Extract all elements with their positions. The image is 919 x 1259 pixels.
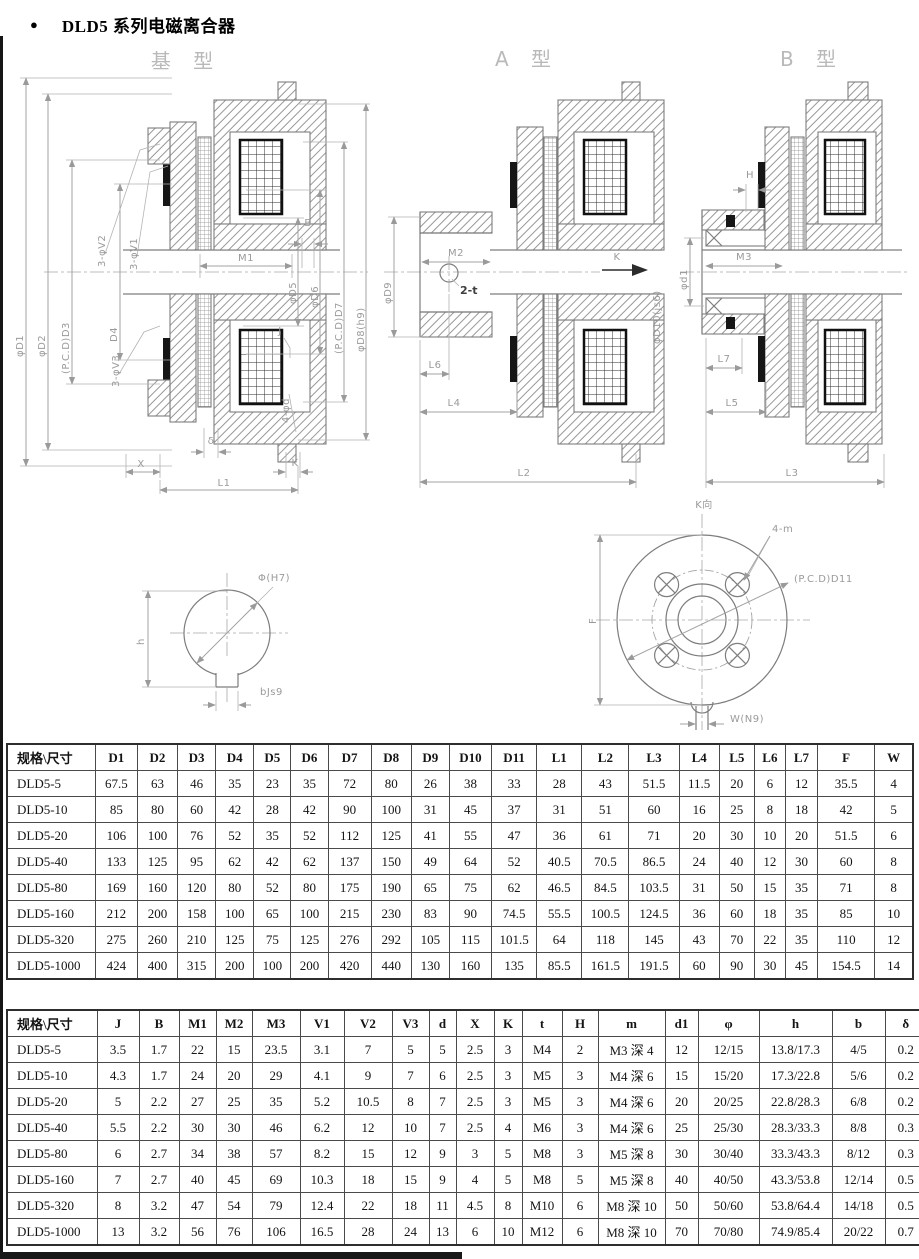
drawing-title-base: 基 型: [151, 49, 221, 73]
table-cell: 43.3/53.8: [759, 1167, 832, 1193]
table-cell: 12: [875, 927, 913, 953]
table-cell: 25: [665, 1115, 698, 1141]
row-label: DLD5-80: [7, 1141, 97, 1167]
table-cell: 0.5: [885, 1193, 919, 1219]
table-cell: 125: [371, 823, 411, 849]
table-cell: 35: [254, 823, 291, 849]
table-cell: 65: [254, 901, 291, 927]
table-cell: 175: [328, 875, 371, 901]
table-cell: 38: [216, 1141, 252, 1167]
table-cell: 28: [344, 1219, 392, 1246]
table-cell: 42: [291, 797, 328, 823]
table-cell: 100: [371, 797, 411, 823]
table-cell: 80: [137, 797, 177, 823]
column-header: M3: [252, 1010, 300, 1037]
table-cell: 0.2: [885, 1063, 919, 1089]
dim-label: L2: [518, 468, 531, 479]
table-row: DLD5-405.52.23030466.2121072.54M63M4 深 6…: [7, 1115, 919, 1141]
table-cell: 7: [429, 1089, 456, 1115]
table-cell: 50: [719, 875, 754, 901]
row-label: DLD5-20: [7, 1089, 97, 1115]
table-cell: 7: [344, 1037, 392, 1063]
table-row: DLD5-1000133.2567610616.5282413610M126M8…: [7, 1219, 919, 1246]
table-cell: 15: [665, 1063, 698, 1089]
table-cell: 120: [178, 875, 216, 901]
table-cell: M4 深 6: [598, 1089, 665, 1115]
row-label: DLD5-80: [7, 875, 95, 901]
table-cell: 47: [492, 823, 537, 849]
table-cell: 169: [95, 875, 137, 901]
table-cell: 6: [429, 1063, 456, 1089]
row-label: DLD5-320: [7, 1193, 97, 1219]
table-cell: 2.7: [139, 1141, 179, 1167]
table-cell: 12: [754, 849, 785, 875]
dim-label: (P.C.D)D3: [61, 322, 72, 374]
table-cell: 52: [254, 875, 291, 901]
table-cell: 3: [456, 1141, 494, 1167]
table-cell: 125: [216, 927, 254, 953]
dim-label: L4: [448, 398, 461, 409]
table-cell: 200: [216, 953, 254, 980]
table-cell: 8: [97, 1193, 139, 1219]
table-cell: 6: [754, 771, 785, 797]
table-cell: 45: [449, 797, 491, 823]
table-cell: 25: [216, 1089, 252, 1115]
table-cell: 3.2: [139, 1193, 179, 1219]
table-cell: 12/15: [698, 1037, 759, 1063]
table-cell: 51: [582, 797, 629, 823]
column-header: V3: [392, 1010, 429, 1037]
dim-label: φd1: [679, 269, 690, 290]
table-row: DLD5-8016916012080528017519065756246.584…: [7, 875, 913, 901]
table-cell: 3: [562, 1063, 598, 1089]
dim-label: 3-φV2: [97, 235, 108, 267]
table-cell: 12.4: [300, 1193, 344, 1219]
table-cell: 28: [254, 797, 291, 823]
table-cell: M8: [522, 1141, 562, 1167]
column-header: L7: [785, 744, 817, 771]
table-cell: 30: [179, 1115, 216, 1141]
table-cell: 440: [371, 953, 411, 980]
dim-label: L3: [786, 468, 799, 479]
table-cell: 52: [492, 849, 537, 875]
table-cell: 30: [719, 823, 754, 849]
table-cell: 30: [785, 849, 817, 875]
table-cell: 70.5: [582, 849, 629, 875]
column-header: F: [818, 744, 875, 771]
table-row: DLD5-32027526021012575125276292105115101…: [7, 927, 913, 953]
table-cell: 41: [411, 823, 449, 849]
table-cell: M5 深 8: [598, 1141, 665, 1167]
table-cell: 10: [754, 823, 785, 849]
dim-label: φD6: [310, 286, 321, 308]
column-header: D2: [137, 744, 177, 771]
table-cell: 100: [291, 901, 328, 927]
table-cell: 4.1: [300, 1063, 344, 1089]
table-cell: 3.2: [139, 1219, 179, 1246]
table-cell: 35: [291, 771, 328, 797]
table-cell: 63: [137, 771, 177, 797]
table-cell: 4.3: [97, 1063, 139, 1089]
dim-label: h: [136, 638, 147, 645]
table-cell: 60: [178, 797, 216, 823]
table-cell: 20/25: [698, 1089, 759, 1115]
table-cell: 40: [719, 849, 754, 875]
table-cell: 46.5: [537, 875, 582, 901]
dim-label: φD1: [15, 335, 26, 357]
table-cell: 20: [719, 771, 754, 797]
table-cell: 24: [679, 849, 719, 875]
table-cell: 18: [785, 797, 817, 823]
catalog-page: ● DLD5 系列电磁离合器 基 型: [0, 0, 919, 1259]
column-header: D6: [291, 744, 328, 771]
table-row: DLD5-401331259562426213715049645240.570.…: [7, 849, 913, 875]
table-cell: 14: [875, 953, 913, 980]
table-cell: 40.5: [537, 849, 582, 875]
table-cell: 62: [291, 849, 328, 875]
table-cell: 24: [179, 1063, 216, 1089]
row-label: DLD5-5: [7, 1037, 97, 1063]
drawing-bore-detail: Φ(H7) h bJs9: [120, 545, 360, 735]
table-cell: 33.3/43.3: [759, 1141, 832, 1167]
table-cell: 62: [492, 875, 537, 901]
table-cell: 50/60: [698, 1193, 759, 1219]
table-cell: 23.5: [252, 1037, 300, 1063]
table-cell: 130: [411, 953, 449, 980]
drawing-title-a: A 型: [495, 47, 559, 71]
table-row: DLD5-567.563463523357280263833284351.511…: [7, 771, 913, 797]
row-label: DLD5-1000: [7, 953, 95, 980]
table-cell: 57: [252, 1141, 300, 1167]
table-cell: 64: [449, 849, 491, 875]
dim-label: M3: [736, 252, 752, 263]
table-cell: M4 深 6: [598, 1115, 665, 1141]
table-cell: 31: [679, 875, 719, 901]
column-header: B: [139, 1010, 179, 1037]
dim-label: δ: [208, 436, 215, 447]
table-cell: 35.5: [818, 771, 875, 797]
table-cell: 6: [456, 1219, 494, 1246]
table-cell: 0.5: [885, 1167, 919, 1193]
table-cell: 161.5: [582, 953, 629, 980]
table-cell: 60: [719, 901, 754, 927]
table-cell: 90: [449, 901, 491, 927]
table-cell: 35: [785, 927, 817, 953]
table-cell: 145: [629, 927, 679, 953]
table-cell: 47: [179, 1193, 216, 1219]
table-cell: 15: [392, 1167, 429, 1193]
table-cell: 56: [179, 1219, 216, 1246]
column-header: L6: [754, 744, 785, 771]
dim-label: φD10(js6): [652, 290, 663, 344]
column-header: V1: [300, 1010, 344, 1037]
row-label: DLD5-1000: [7, 1219, 97, 1246]
table-cell: 46: [178, 771, 216, 797]
dim-label: Φ(H7): [258, 573, 290, 584]
column-header: h: [759, 1010, 832, 1037]
table-cell: 22.8/28.3: [759, 1089, 832, 1115]
table-cell: 52: [216, 823, 254, 849]
table-cell: 25: [719, 797, 754, 823]
table-cell: 6/8: [832, 1089, 885, 1115]
table-cell: 76: [216, 1219, 252, 1246]
dim-label: W(N9): [730, 714, 764, 725]
table-cell: 62: [216, 849, 254, 875]
table-row: DLD5-16021220015810065100215230839074.55…: [7, 901, 913, 927]
column-header: L3: [629, 744, 679, 771]
dim-label: K: [291, 458, 298, 469]
dim-label: L1: [218, 478, 231, 489]
table-cell: 71: [818, 875, 875, 901]
dim-label: F: [588, 618, 599, 624]
table-cell: 13: [429, 1219, 456, 1246]
table-cell: 3.1: [300, 1037, 344, 1063]
table-cell: 424: [95, 953, 137, 980]
table-cell: 13.8/17.3: [759, 1037, 832, 1063]
table-row: DLD5-53.51.7221523.53.17552.53M42M3 深 41…: [7, 1037, 919, 1063]
table-cell: 103.5: [629, 875, 679, 901]
table-cell: M3 深 4: [598, 1037, 665, 1063]
column-header: L4: [679, 744, 719, 771]
dim-label: (P.C.D)D7: [334, 302, 345, 354]
dimension-table-2-wrap: 规格\尺寸JBM1M2M3V1V2V3dXKtHmd1φhbδDLD5-53.5…: [6, 1009, 919, 1246]
row-label: DLD5-160: [7, 901, 95, 927]
dim-label: (P.C.D)D11: [794, 574, 853, 585]
table-cell: 0.2: [885, 1089, 919, 1115]
table-cell: 20/22: [832, 1219, 885, 1246]
table-cell: 215: [328, 901, 371, 927]
dim-label: J: [277, 326, 281, 337]
table-cell: M10: [522, 1193, 562, 1219]
dimension-table-2: 规格\尺寸JBM1M2M3V1V2V3dXKtHmd1φhbδDLD5-53.5…: [6, 1009, 919, 1246]
dim-label: 3-φV1: [129, 238, 140, 270]
dim-label: M2: [448, 248, 464, 259]
table-cell: 83: [411, 901, 449, 927]
table-cell: 42: [818, 797, 875, 823]
table-cell: 76: [178, 823, 216, 849]
table-cell: 2.5: [456, 1115, 494, 1141]
table-cell: 90: [328, 797, 371, 823]
column-header: J: [97, 1010, 139, 1037]
table-cell: 4: [494, 1115, 522, 1141]
table-cell: M12: [522, 1219, 562, 1246]
table-row: DLD5-32083.247547912.42218114.58M106M8 深…: [7, 1193, 919, 1219]
table-cell: 67.5: [95, 771, 137, 797]
column-header: D3: [178, 744, 216, 771]
table-cell: 0.3: [885, 1115, 919, 1141]
table-cell: 18: [754, 901, 785, 927]
table-cell: 5: [392, 1037, 429, 1063]
table-cell: 3: [494, 1037, 522, 1063]
table-cell: 6: [562, 1193, 598, 1219]
table-cell: 26: [411, 771, 449, 797]
table-cell: 125: [137, 849, 177, 875]
table-cell: M8 深 10: [598, 1193, 665, 1219]
column-header: X: [456, 1010, 494, 1037]
column-header: D4: [216, 744, 254, 771]
table-cell: M4: [522, 1037, 562, 1063]
table-cell: 20: [216, 1063, 252, 1089]
table-cell: 5: [494, 1167, 522, 1193]
table-cell: 7: [392, 1063, 429, 1089]
table-cell: 61: [582, 823, 629, 849]
table-cell: 115: [449, 927, 491, 953]
table-cell: 12: [665, 1037, 698, 1063]
table-cell: 2.5: [456, 1037, 494, 1063]
table-cell: 46: [252, 1115, 300, 1141]
table-cell: 5.2: [300, 1089, 344, 1115]
table-cell: 9: [429, 1141, 456, 1167]
column-header: D7: [328, 744, 371, 771]
table-cell: 12: [344, 1115, 392, 1141]
table-cell: 70: [665, 1219, 698, 1246]
drawing-a-type: A 型 2-t M2 φD9 L6: [372, 42, 672, 502]
dim-label: B: [304, 218, 311, 229]
table-cell: 3.5: [97, 1037, 139, 1063]
table-cell: 4/5: [832, 1037, 885, 1063]
table-row: DLD5-16072.740456910.31815945M85M5 深 840…: [7, 1167, 919, 1193]
table-cell: 80: [371, 771, 411, 797]
column-header: b: [832, 1010, 885, 1037]
row-label: DLD5-40: [7, 1115, 97, 1141]
table-cell: 5.5: [97, 1115, 139, 1141]
table-cell: 20: [665, 1089, 698, 1115]
table-cell: 14/18: [832, 1193, 885, 1219]
table-cell: 10.3: [300, 1167, 344, 1193]
table-cell: 135: [492, 953, 537, 980]
column-header: δ: [885, 1010, 919, 1037]
table-cell: 112: [328, 823, 371, 849]
column-header: φ: [698, 1010, 759, 1037]
column-header: L2: [582, 744, 629, 771]
table-cell: 0.3: [885, 1141, 919, 1167]
table-cell: 2.2: [139, 1089, 179, 1115]
column-header: V2: [344, 1010, 392, 1037]
table-cell: 38: [449, 771, 491, 797]
column-header: L5: [719, 744, 754, 771]
table-cell: 51.5: [818, 823, 875, 849]
table-cell: 55.5: [537, 901, 582, 927]
table-cell: 71: [629, 823, 679, 849]
column-header: D10: [449, 744, 491, 771]
table-row: DLD5-8062.73438578.21512935M83M5 深 83030…: [7, 1141, 919, 1167]
table-cell: 400: [137, 953, 177, 980]
table-row: DLD5-10858060422842901003145373151601625…: [7, 797, 913, 823]
table-cell: 13: [97, 1219, 139, 1246]
table-cell: M5: [522, 1063, 562, 1089]
table-cell: 230: [371, 901, 411, 927]
table-cell: 7: [97, 1167, 139, 1193]
table-cell: 10.5: [344, 1089, 392, 1115]
table-cell: 276: [328, 927, 371, 953]
table-cell: 260: [137, 927, 177, 953]
table-cell: 30: [754, 953, 785, 980]
dim-label: φD2: [37, 335, 48, 357]
table-cell: 7: [429, 1115, 456, 1141]
column-header: d: [429, 1010, 456, 1037]
table-cell: 6: [875, 823, 913, 849]
table-cell: 34: [179, 1141, 216, 1167]
table-cell: 52: [291, 823, 328, 849]
table-cell: 29: [252, 1063, 300, 1089]
column-header: K: [494, 1010, 522, 1037]
table-cell: 33: [492, 771, 537, 797]
table-cell: 42: [216, 797, 254, 823]
table-cell: 9: [429, 1167, 456, 1193]
table-cell: M8: [522, 1167, 562, 1193]
table-cell: 23: [254, 771, 291, 797]
table-cell: 200: [137, 901, 177, 927]
table-cell: 10: [392, 1115, 429, 1141]
table-cell: 17.3/22.8: [759, 1063, 832, 1089]
table-cell: 51.5: [629, 771, 679, 797]
table-cell: 3: [494, 1063, 522, 1089]
column-header: D8: [371, 744, 411, 771]
column-header: M2: [216, 1010, 252, 1037]
table-cell: 22: [754, 927, 785, 953]
table-cell: 18: [344, 1167, 392, 1193]
table-cell: 85: [95, 797, 137, 823]
table-cell: 40/50: [698, 1167, 759, 1193]
coil-top: [240, 140, 282, 214]
table-cell: 100: [137, 823, 177, 849]
table-cell: 54: [216, 1193, 252, 1219]
table-cell: 43: [582, 771, 629, 797]
table-row: DLD5-20106100765235521121254155473661712…: [7, 823, 913, 849]
scan-left-edge: [0, 36, 3, 1259]
table-cell: 158: [178, 901, 216, 927]
dim-label: φD5: [288, 282, 299, 304]
table-cell: 6: [562, 1219, 598, 1246]
table-cell: 70/80: [698, 1219, 759, 1246]
table-cell: M5 深 8: [598, 1167, 665, 1193]
table-cell: M6: [522, 1115, 562, 1141]
spec-size-header: 规格\尺寸: [7, 744, 95, 771]
table-cell: 10: [494, 1219, 522, 1246]
table-cell: 8.2: [300, 1141, 344, 1167]
table-cell: M8 深 10: [598, 1219, 665, 1246]
table-cell: 35: [216, 771, 254, 797]
table-cell: 5: [875, 797, 913, 823]
dimension-table-1: 规格\尺寸D1D2D3D4D5D6D7D8D9D10D11L1L2L3L4L5L…: [6, 743, 914, 980]
table-cell: 40: [665, 1167, 698, 1193]
column-header: W: [875, 744, 913, 771]
dim-label: D4: [109, 327, 120, 342]
table-cell: 22: [179, 1037, 216, 1063]
table-cell: 20: [679, 823, 719, 849]
drawing-base-type: 基 型 φD1 φD2 (P.C.D)D3 D4: [8, 42, 376, 502]
table-cell: 86.5: [629, 849, 679, 875]
table-cell: 25/30: [698, 1115, 759, 1141]
column-header: D1: [95, 744, 137, 771]
table-cell: 100: [216, 901, 254, 927]
table-cell: 24: [392, 1219, 429, 1246]
table-cell: 11.5: [679, 771, 719, 797]
table-cell: 100: [254, 953, 291, 980]
bullet-icon: ●: [30, 17, 38, 33]
coil-top: [584, 140, 626, 214]
table-cell: 42: [254, 849, 291, 875]
table-cell: 50: [665, 1193, 698, 1219]
table-cell: 60: [629, 797, 679, 823]
table-cell: 15: [754, 875, 785, 901]
table-cell: 420: [328, 953, 371, 980]
row-label: DLD5-320: [7, 927, 95, 953]
table-cell: 65: [411, 875, 449, 901]
table-cell: 12/14: [832, 1167, 885, 1193]
table-cell: 106: [95, 823, 137, 849]
table-cell: 160: [137, 875, 177, 901]
